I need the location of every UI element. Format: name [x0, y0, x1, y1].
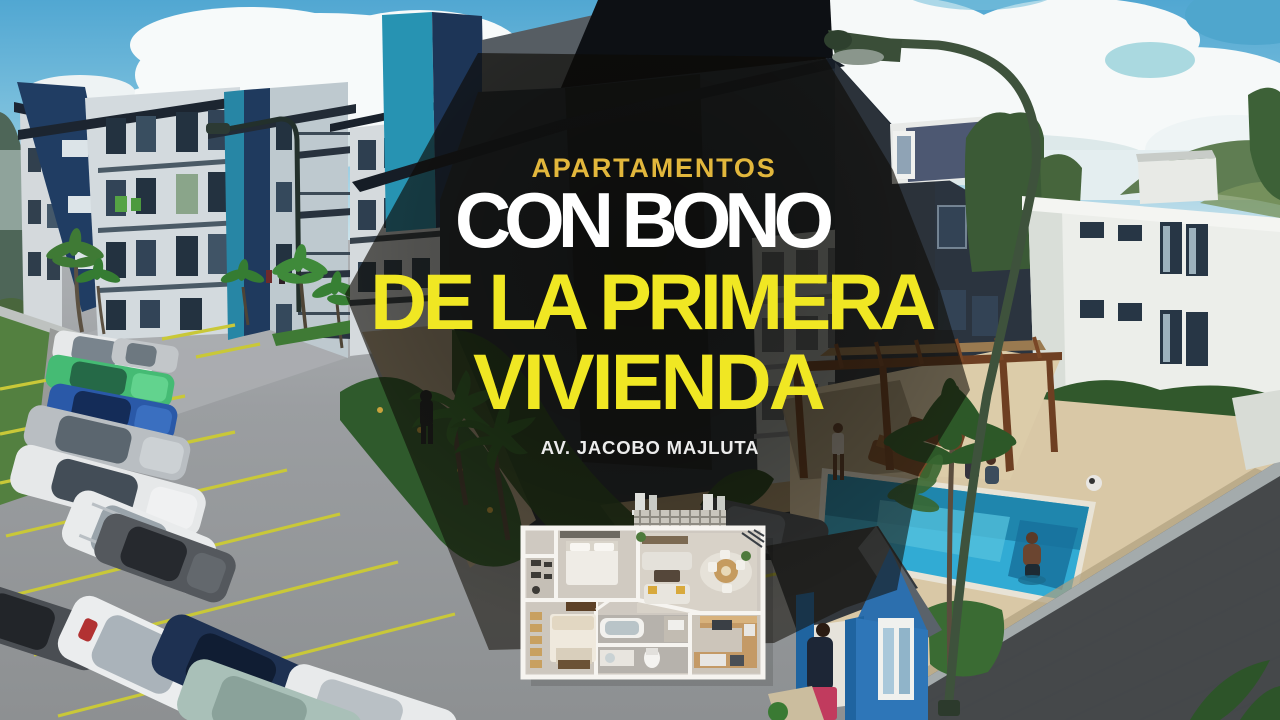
svg-text:DE LA PRIMERA: DE LA PRIMERA: [370, 257, 934, 346]
svg-text:VIVIENDA: VIVIENDA: [473, 337, 824, 426]
svg-text:CON BONO: CON BONO: [455, 176, 832, 264]
svg-text:AV. JACOBO MAJLUTA: AV. JACOBO MAJLUTA: [541, 437, 760, 458]
